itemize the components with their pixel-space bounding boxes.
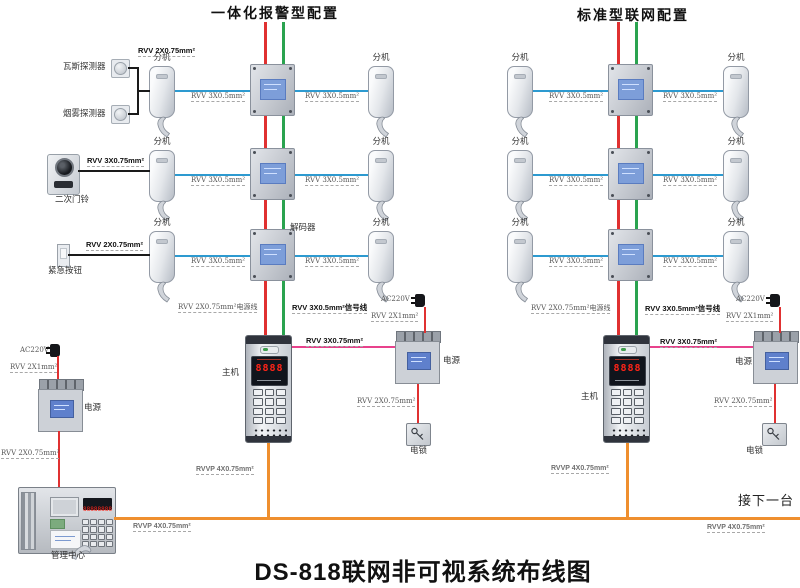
decoder-box [608, 64, 653, 116]
screw [289, 275, 292, 278]
cable-label-signal: RVV 3X0.5mm² [305, 177, 359, 186]
screw [611, 194, 614, 197]
handset-body [149, 66, 175, 118]
psu-label-plate [765, 352, 789, 370]
host-label: 主机 [581, 393, 598, 402]
lock-label: 电锁 [746, 447, 763, 456]
console-key [106, 541, 113, 547]
extension-label: 分机 [372, 219, 389, 228]
host-top-cap [246, 336, 291, 344]
speaker-slot [54, 181, 73, 188]
entrance-host-panel: 8888 [603, 335, 650, 443]
host-key [276, 389, 286, 396]
screw [289, 110, 292, 113]
ac-label: AC220V [736, 296, 765, 303]
host-key [611, 408, 621, 415]
screw [647, 110, 650, 113]
screw [647, 67, 650, 70]
power-supply-label: 电源 [735, 358, 752, 367]
power-supply-label: 电源 [443, 357, 460, 366]
extension-label: 分机 [153, 219, 170, 228]
decoder-label-plate [618, 79, 644, 100]
cable-label-lock: RVV 2X0.75mm² [357, 398, 415, 407]
ac-plug-icon [766, 294, 780, 307]
screw [289, 151, 292, 154]
cable-label-host-power: RVV 3X0.75mm² [660, 338, 717, 348]
host-key [253, 398, 263, 405]
console-led-digits: 88888888 [83, 506, 112, 513]
extension-handset [507, 66, 533, 144]
host-key [265, 398, 275, 405]
host-key [634, 389, 644, 396]
screw [289, 194, 292, 197]
cable-label-trunk: RVVP 4X0.75mm² [707, 524, 765, 533]
extension-label: 分机 [511, 54, 528, 63]
console-key [106, 526, 113, 532]
handset-body [149, 231, 175, 283]
power-supply [395, 331, 440, 384]
cable-label-power-line: RVV 2X0.75mm²电源线 [531, 305, 610, 314]
host-keypad [611, 389, 644, 424]
decoder-label-plate [618, 244, 644, 265]
extension-handset [149, 231, 175, 309]
decoder-label-plate [260, 163, 286, 184]
host-key [611, 398, 621, 405]
gas-detector-label: 瓦斯探测器 [63, 63, 106, 72]
extension-label: 分机 [153, 138, 170, 147]
cable-label-detector: RVV 2X0.75mm² [138, 47, 195, 57]
handset-body [507, 66, 533, 118]
decoder-label-plate [618, 163, 644, 184]
host-key [253, 389, 263, 396]
diagram-title: DS-818联网非可视系统布线图 [254, 552, 591, 587]
ac-label: AC220V [381, 296, 410, 303]
ac-plug-icon [411, 294, 425, 307]
host-display-digits: 8888 [610, 363, 645, 374]
host-key [265, 417, 275, 424]
decoder-box [250, 229, 295, 281]
cable-label-signal-line: RVV 3X0.5mm²信号线 [292, 304, 367, 314]
host-key [276, 417, 286, 424]
host-key [634, 417, 644, 424]
extension-label: 分机 [727, 54, 744, 63]
management-center-label: 管理中心 [51, 552, 85, 561]
extension-label: 分机 [727, 219, 744, 228]
emergency-button-label: 紧急按钮 [48, 267, 82, 276]
handset-body [507, 150, 533, 202]
key-icon [763, 424, 784, 443]
console-key [98, 541, 105, 547]
section-title: 标准型联网配置 [577, 5, 689, 25]
cable-label-signal: RVV 3X0.5mm² [663, 177, 717, 186]
extension-label: 分机 [511, 138, 528, 147]
extension-handset [507, 231, 533, 309]
cable-label-signal: RVV 3X0.5mm² [191, 177, 245, 186]
ac-label: AC220V [20, 347, 49, 354]
cable-label-signal: RVV 3X0.5mm² [549, 93, 603, 102]
screw [647, 194, 650, 197]
screw [289, 67, 292, 70]
psu-label-plate [407, 352, 431, 370]
console-led-display: 88888888 [83, 498, 112, 510]
handset-receiver [510, 280, 530, 304]
handset-body [368, 150, 394, 202]
cable-label-trunk: RVVP 4X0.75mm² [133, 523, 191, 532]
cable-label-signal-line: RVV 3X0.5mm²信号线 [645, 305, 720, 315]
lock-label: 电锁 [410, 447, 427, 456]
cable-label-host-power: RVV 3X0.75mm² [306, 337, 363, 347]
cable-label-signal: RVV 3X0.5mm² [549, 177, 603, 186]
host-key [623, 417, 633, 424]
cable-label-signal: RVV 3X0.5mm² [191, 93, 245, 102]
host-key [253, 408, 263, 415]
extension-handset [368, 150, 394, 228]
doorbell-wire-black [78, 170, 150, 172]
trunk-wire-orange [114, 517, 800, 520]
management-console: 88888888 [18, 487, 116, 554]
decoder-label-plate [260, 244, 286, 265]
console-key [90, 526, 97, 532]
screw [253, 110, 256, 113]
cable-label-lock: RVV 2X0.75mm² [714, 398, 772, 407]
screw [253, 194, 256, 197]
host-keypad [253, 389, 286, 424]
handset-body [723, 150, 749, 202]
cable-label-signal: RVV 3X0.5mm² [663, 258, 717, 267]
decoder-box [608, 148, 653, 200]
console-key [106, 534, 113, 540]
handset-body [368, 231, 394, 283]
host-key [265, 389, 275, 396]
cable-label-ac: RVV 2X1mm² [10, 364, 57, 373]
host-bottom-cap [604, 436, 649, 442]
screw [253, 151, 256, 154]
extension-handset [507, 150, 533, 228]
console-key [90, 519, 97, 525]
extension-label: 分机 [727, 138, 744, 147]
screw [611, 110, 614, 113]
host-logo [260, 346, 279, 354]
host-key [253, 417, 263, 424]
power-supply [753, 331, 798, 384]
riser-wire-orange [626, 443, 629, 520]
cable-label-emergency: RVV 2X0.75mm² [86, 241, 143, 251]
screw [611, 232, 614, 235]
cable-label-riser: RVVP 4X0.75mm² [551, 465, 609, 474]
extension-label: 分机 [372, 138, 389, 147]
host-key [634, 398, 644, 405]
screw [611, 275, 614, 278]
console-key [98, 519, 105, 525]
cable-label-ac: RVV 2X1mm² [726, 313, 773, 322]
wiring-diagram-canvas: 一体化报警型配置分机分机RVV 3X0.5mm²RVV 3X0.5mm²分机分机… [0, 0, 800, 588]
cable-label-mgmt-power: RVV 2X0.75mm² [1, 450, 59, 459]
host-key [623, 389, 633, 396]
host-bottom-cap [246, 436, 291, 442]
doorbell-camera [47, 154, 80, 195]
host-key [611, 417, 621, 424]
cable-label-signal: RVV 3X0.5mm² [305, 93, 359, 102]
next-unit-label: 接下一台 [738, 495, 794, 508]
extension-handset [368, 66, 394, 144]
decoder-label: 解码器 [290, 224, 316, 233]
entrance-host-panel: 8888 [245, 335, 292, 443]
host-key [623, 398, 633, 405]
console-handset [21, 492, 36, 550]
screw [253, 232, 256, 235]
host-logo [618, 346, 637, 354]
console-key [98, 534, 105, 540]
screw [611, 151, 614, 154]
handset-receiver [152, 280, 172, 304]
handset-receiver [510, 115, 530, 139]
handset-receiver [152, 115, 172, 139]
psu-label-plate [50, 400, 74, 418]
host-key [265, 408, 275, 415]
extension-label: 分机 [372, 54, 389, 63]
lock-power-wire-red [774, 384, 776, 425]
extension-handset [149, 150, 175, 228]
section-title: 一体化报警型配置 [211, 3, 339, 23]
cable-label-signal: RVV 3X0.5mm² [663, 93, 717, 102]
power-supply-label: 电源 [84, 404, 101, 413]
decoder-box [250, 64, 295, 116]
electric-lock [406, 423, 431, 446]
host-key [611, 389, 621, 396]
handset-body [368, 66, 394, 118]
extension-label: 分机 [511, 219, 528, 228]
cable-label-signal: RVV 3X0.5mm² [305, 258, 359, 267]
host-display: 8888 [251, 356, 288, 386]
decoder-box [608, 229, 653, 281]
mgmt-power-wire-red [58, 431, 60, 488]
smoke-detector-label: 烟雾探测器 [63, 110, 106, 119]
cable-label-ac: RVV 2X1mm² [371, 313, 418, 322]
handset-body [507, 231, 533, 283]
ac-power-wire-red [424, 307, 426, 333]
detector-wire-black [137, 90, 150, 92]
riser-wire-orange [267, 443, 270, 520]
screw [253, 275, 256, 278]
decoder-label-plate [260, 79, 286, 100]
ac-power-wire-red [779, 307, 781, 333]
electric-lock [762, 423, 787, 446]
lock-power-wire-red [417, 384, 419, 425]
decoder-box [250, 148, 295, 200]
power-supply [38, 379, 83, 432]
host-display: 8888 [609, 356, 646, 386]
host-key [276, 408, 286, 415]
console-key [106, 519, 113, 525]
camera-lens [55, 158, 74, 177]
handset-receiver [726, 115, 746, 139]
doorbell-label: 二次门铃 [55, 196, 89, 205]
host-label: 主机 [222, 369, 239, 378]
emergency-wire-black [68, 254, 150, 256]
extension-handset [723, 66, 749, 144]
cable-label-power-line: RVV 2X0.75mm²电源线 [178, 304, 257, 313]
cable-label-signal: RVV 3X0.5mm² [191, 258, 245, 267]
host-key [276, 398, 286, 405]
screw [611, 67, 614, 70]
console-key [82, 519, 89, 525]
handset-body [149, 150, 175, 202]
console-logo-tag [50, 519, 65, 529]
extension-handset [723, 150, 749, 228]
console-key [90, 534, 97, 540]
cable-label-signal: RVV 3X0.5mm² [549, 258, 603, 267]
host-key [634, 408, 644, 415]
plug-body [770, 294, 780, 307]
host-key [623, 408, 633, 415]
host-top-cap [604, 336, 649, 344]
screw [647, 275, 650, 278]
cable-label-doorbell: RVV 3X0.75mm² [87, 157, 144, 167]
screw [647, 151, 650, 154]
handset-body [723, 231, 749, 283]
host-display-digits: 8888 [252, 363, 287, 374]
handset-receiver [371, 115, 391, 139]
screw [253, 67, 256, 70]
handset-body [723, 66, 749, 118]
console-key [98, 526, 105, 532]
cable-label-riser: RVVP 4X0.75mm² [196, 466, 254, 475]
plug-body [415, 294, 425, 307]
console-key [82, 526, 89, 532]
key-icon [407, 424, 428, 443]
console-screen [50, 497, 79, 517]
extension-handset [149, 66, 175, 144]
screw [647, 232, 650, 235]
